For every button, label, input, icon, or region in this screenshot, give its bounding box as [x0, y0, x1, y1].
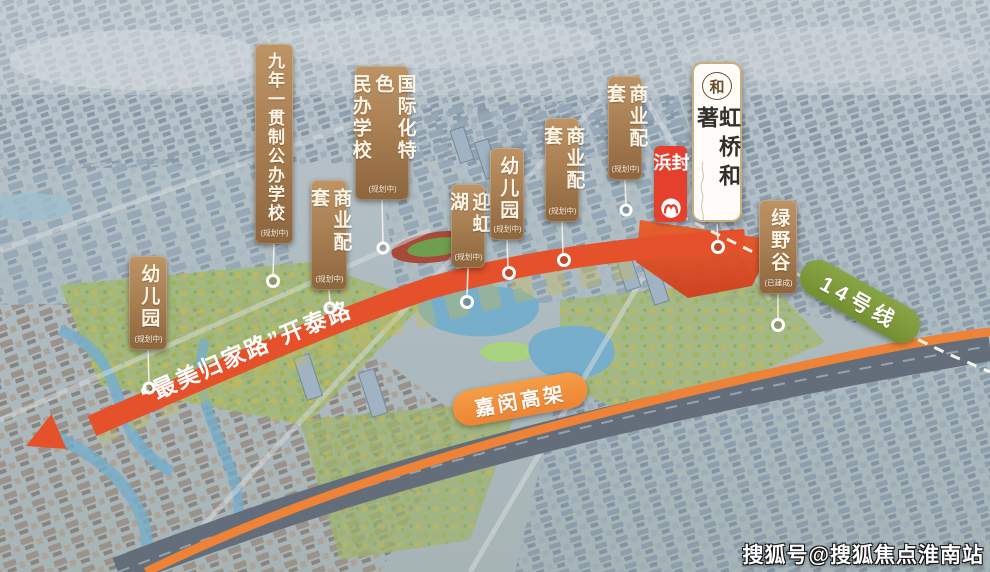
landmark-status: (规划中) — [315, 273, 343, 284]
landmark-status: (规划中) — [134, 333, 162, 344]
landmark-yinghong-lake: 迎虹湖 (规划中) — [451, 184, 485, 268]
project-logo-icon: 和 — [702, 72, 732, 100]
landmark-status: (规划中) — [260, 227, 288, 238]
metro-station-tag: 封浜 — [654, 146, 687, 222]
shanghai-metro-icon — [660, 198, 682, 218]
calligraphy-flourish — [699, 160, 707, 224]
landmark-green-valley: 绿野谷 (已建成) — [759, 200, 797, 294]
project-card: 和 虹桥和著 — [692, 62, 742, 222]
landmark-status: (已建成) — [764, 277, 792, 288]
landmark-status: (规划中) — [548, 205, 576, 216]
watermark: 搜狐号@搜狐焦点淮南站 — [743, 539, 984, 569]
landmark-kindergarten-1: 幼儿园 (规划中) — [129, 256, 167, 350]
metro-station-name: 封浜 — [653, 153, 689, 194]
landmark-commercial-2: 商业配套 (规划中) — [545, 118, 579, 222]
landmark-commercial-3: 商业配套 (规划中) — [608, 76, 642, 180]
landmark-public-school: 九年一贯制公办学校 (规划中) — [255, 44, 293, 244]
landmark-status: (规划中) — [454, 251, 482, 262]
landmark-kindergarten-2: 幼儿园 (规划中) — [490, 148, 524, 240]
landmark-commercial-1: 商业配套 (规划中) — [311, 180, 347, 290]
landmark-status: (规划中) — [368, 183, 396, 194]
landmark-status: (规划中) — [493, 223, 521, 234]
landmark-private-school: 国际化特色 民办学校 (规划中) — [355, 66, 409, 200]
landmark-status: (规划中) — [611, 163, 639, 174]
aerial-masterplan-map: “最美归家路”开泰路 九年一贯制公办学校 (规 — [0, 0, 990, 572]
